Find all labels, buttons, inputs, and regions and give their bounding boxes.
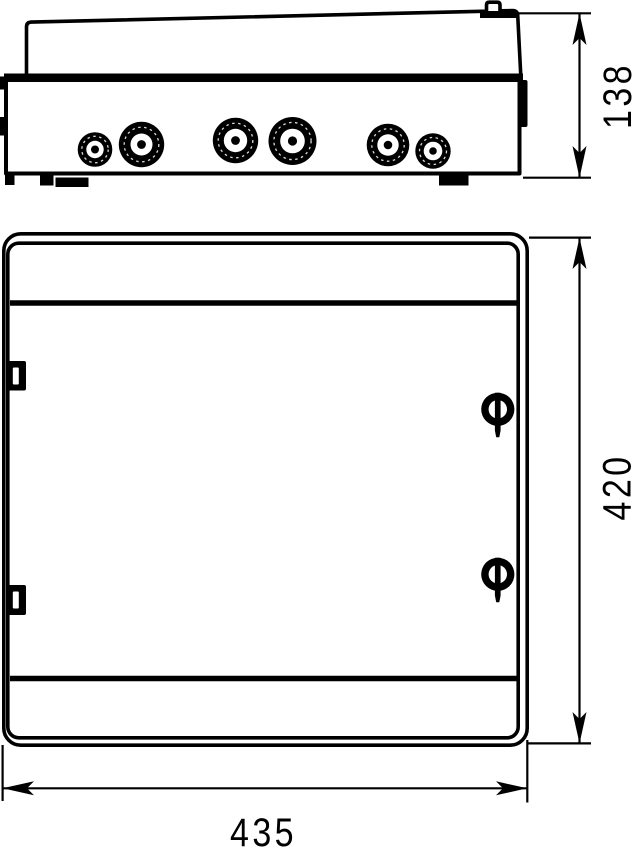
technical-drawing: 138 420 435	[0, 0, 633, 850]
drawing-canvas: 138 420 435	[0, 0, 633, 850]
mounting-foot	[5, 173, 15, 185]
mounting-foot	[439, 174, 469, 186]
dimension-depth: 138	[517, 13, 633, 177]
cable-knockout	[367, 124, 410, 167]
front-view	[4, 234, 527, 745]
side-latch	[520, 80, 528, 127]
mounting-foot	[56, 178, 89, 188]
dimension-height: 420	[527, 238, 633, 744]
cable-knockout	[119, 122, 164, 167]
cable-knockout	[213, 118, 258, 163]
door-frame	[8, 243, 518, 738]
dimension-depth-label: 138	[594, 62, 633, 129]
wall-tab-lower	[0, 117, 5, 136]
cable-knockout	[78, 132, 113, 167]
cable-knockout	[269, 117, 317, 165]
mounting-foot	[40, 176, 54, 186]
dimension-width-label: 435	[230, 809, 297, 850]
hinge-top	[8, 361, 27, 391]
hinge-bottom	[8, 585, 27, 615]
dimension-height-label: 420	[594, 454, 633, 521]
wall-tab-upper	[0, 77, 5, 90]
cable-knockout	[415, 133, 450, 168]
dimension-width: 435	[3, 740, 528, 850]
top-view	[0, 2, 528, 187]
lid-profile	[27, 2, 521, 76]
